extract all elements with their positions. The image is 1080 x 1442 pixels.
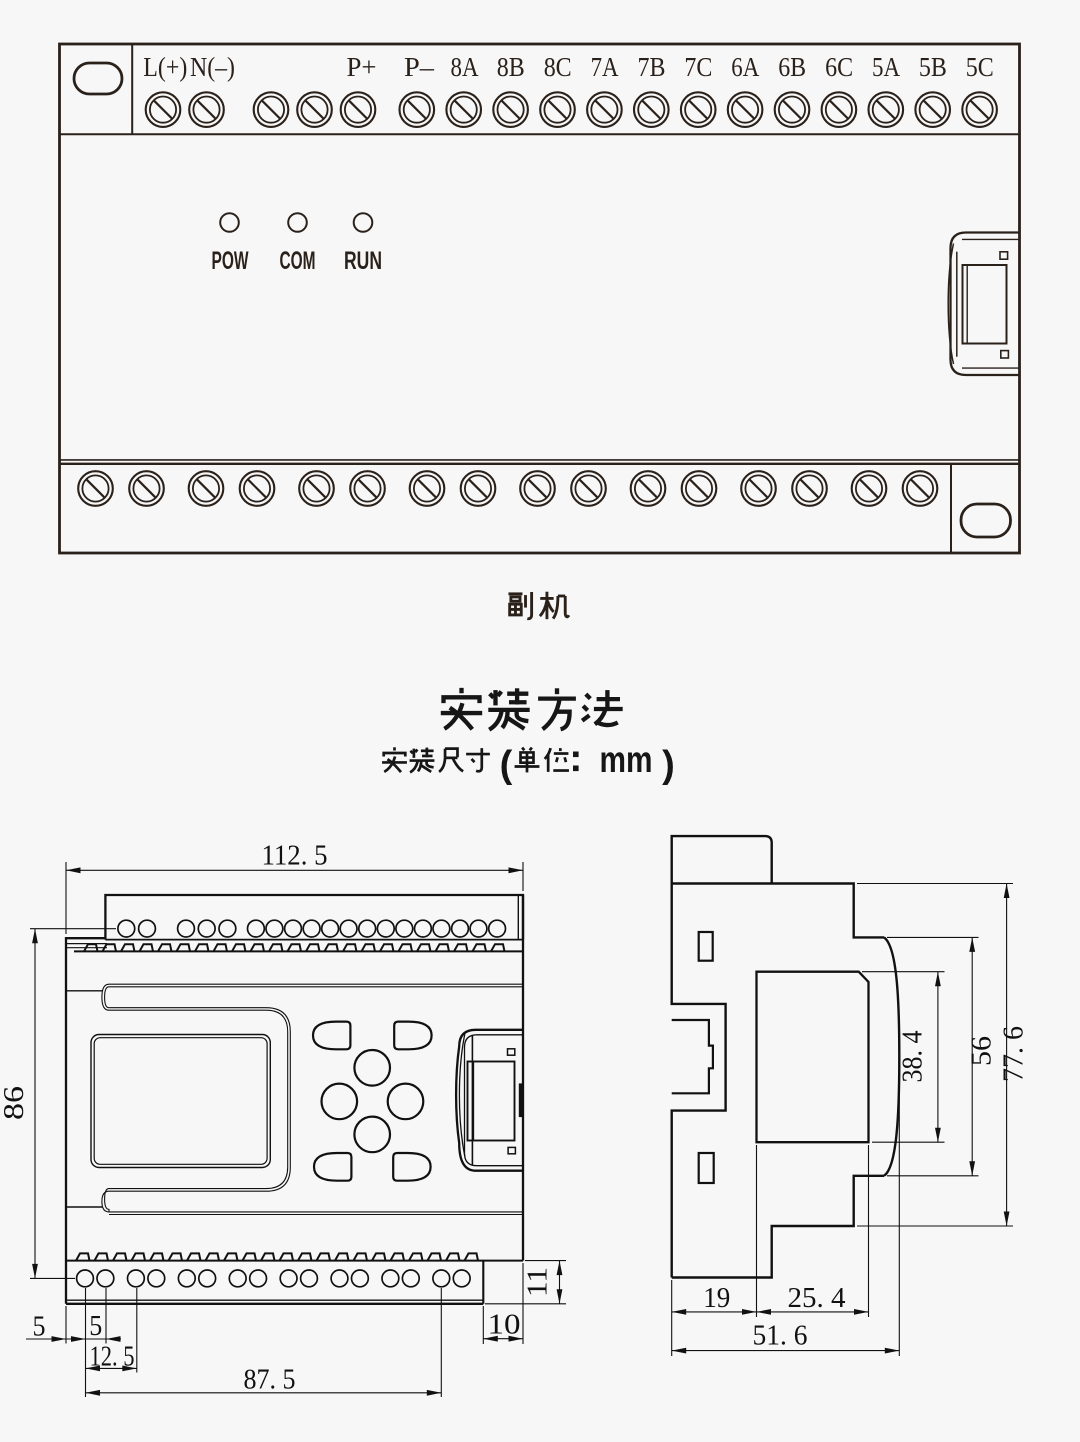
svg-text:56: 56 (967, 1036, 998, 1066)
svg-text:mm: mm (600, 739, 653, 780)
svg-text:6A: 6A (731, 52, 759, 82)
svg-text:7A: 7A (591, 52, 619, 82)
svg-text:7B: 7B (638, 52, 666, 82)
svg-text:11: 11 (523, 1267, 554, 1297)
svg-text:5: 5 (89, 1311, 102, 1342)
svg-text:112. 5: 112. 5 (262, 841, 328, 872)
svg-text:5C: 5C (966, 52, 994, 82)
svg-text:7C: 7C (684, 52, 712, 82)
svg-text:25. 4: 25. 4 (788, 1283, 846, 1314)
svg-text:8A: 8A (451, 52, 479, 82)
svg-text:86: 86 (0, 1086, 30, 1120)
svg-text:L(+): L(+) (143, 52, 187, 82)
svg-text:6B: 6B (778, 52, 806, 82)
svg-text:38. 4: 38. 4 (898, 1031, 929, 1083)
svg-text:77. 6: 77. 6 (999, 1026, 1030, 1082)
svg-text:): ) (662, 744, 675, 786)
svg-text:8C: 8C (544, 52, 572, 82)
svg-text:19: 19 (703, 1283, 730, 1314)
svg-text:5B: 5B (919, 52, 947, 82)
svg-text:P+: P+ (347, 52, 377, 82)
svg-text:12. 5: 12. 5 (90, 1342, 135, 1373)
svg-text:POW: POW (212, 247, 249, 275)
svg-text:P–: P– (404, 52, 435, 82)
svg-text:51. 6: 51. 6 (753, 1321, 808, 1352)
svg-text:8B: 8B (497, 52, 525, 82)
svg-text:N(–): N(–) (190, 52, 235, 82)
svg-text:(: ( (500, 744, 513, 786)
svg-text:5A: 5A (872, 52, 900, 82)
svg-text:87. 5: 87. 5 (244, 1365, 296, 1396)
svg-text:RUN: RUN (344, 247, 382, 275)
svg-text:COM: COM (280, 247, 316, 275)
svg-text:5: 5 (33, 1312, 46, 1343)
svg-text:10: 10 (488, 1310, 521, 1341)
svg-text:6C: 6C (825, 52, 853, 82)
